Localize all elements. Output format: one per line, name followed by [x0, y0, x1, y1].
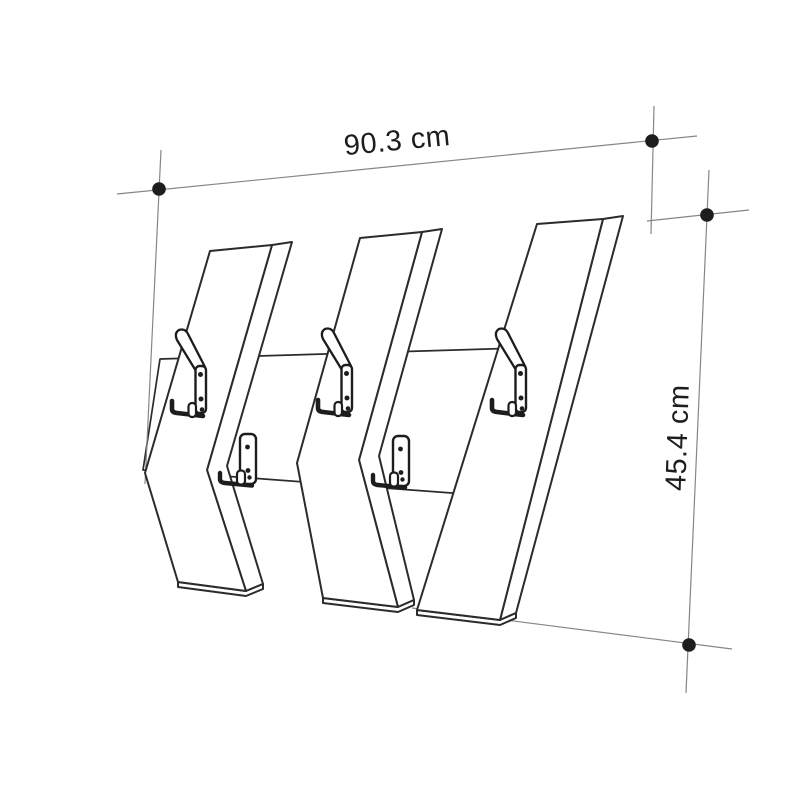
- dimension-endpoint-dot: [152, 182, 166, 196]
- single-hook-2-peg: [390, 473, 398, 487]
- width-dimension-label: 90.3 cm: [342, 120, 451, 162]
- screw-hole: [345, 396, 350, 401]
- double-hook-2-peg: [335, 402, 343, 416]
- screw-hole: [346, 406, 351, 411]
- double-hook-1-peg: [189, 403, 197, 417]
- screw-hole: [246, 468, 251, 473]
- screw-hole: [398, 447, 403, 452]
- dimension-endpoint-dot: [682, 638, 696, 652]
- dimension-endpoint-dot: [645, 134, 659, 148]
- screw-hole: [400, 477, 404, 481]
- right-top-extension-line: [651, 106, 654, 234]
- dimension-endpoint-dot: [700, 208, 714, 222]
- screw-hole: [519, 396, 524, 401]
- height-top-extension-line: [647, 210, 749, 221]
- screw-hole: [518, 371, 523, 376]
- screw-hole: [399, 470, 404, 475]
- screw-hole: [344, 371, 349, 376]
- double-hook-3-peg: [509, 402, 517, 416]
- screw-hole: [245, 445, 250, 450]
- screw-hole: [247, 475, 251, 479]
- coat-rack-dimension-diagram: 90.3 cm 45.4 cm: [0, 0, 800, 800]
- screw-hole: [200, 407, 205, 412]
- height-dimension-label: 45.4 cm: [660, 384, 696, 492]
- screw-hole: [199, 397, 204, 402]
- screw-hole: [198, 372, 203, 377]
- single-hook-1-peg: [237, 471, 245, 485]
- diagram-canvas: 90.3 cm 45.4 cm: [0, 0, 800, 800]
- screw-hole: [520, 406, 525, 411]
